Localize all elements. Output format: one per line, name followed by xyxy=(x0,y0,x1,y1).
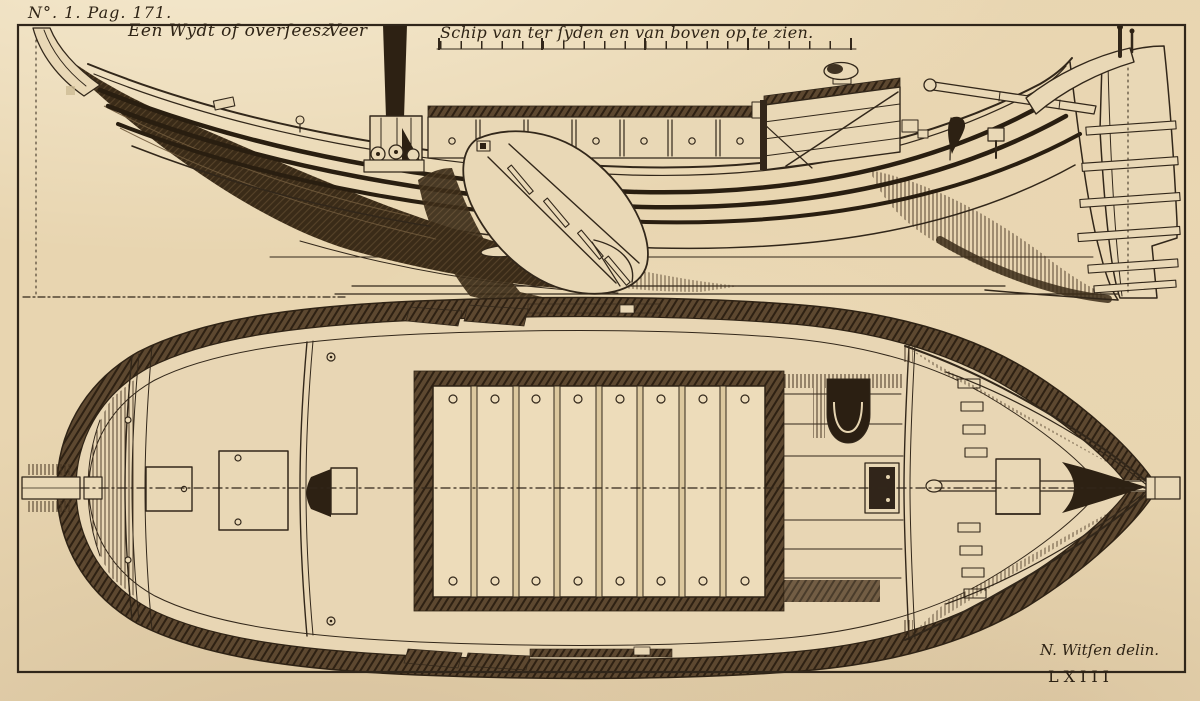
scale-bar xyxy=(437,44,856,49)
cabin xyxy=(760,63,928,171)
engraving-canvas xyxy=(0,0,1200,701)
block-pulley xyxy=(407,149,419,161)
aft-box xyxy=(996,459,1040,514)
spar-knob xyxy=(924,79,936,91)
bow-stem xyxy=(33,28,100,96)
mast xyxy=(364,25,424,172)
plate-number: LXIII xyxy=(1048,667,1114,686)
title-part-1: Een Wydt of overſeesz xyxy=(128,21,331,41)
small-hatch xyxy=(146,467,192,511)
side-view xyxy=(23,24,1180,303)
page-reference: N°. 1. Pag. 171. xyxy=(28,3,172,22)
mid-hatch xyxy=(219,451,288,530)
engraver-signature: N. Witſen delin. xyxy=(1040,641,1159,659)
engraved-plate: N°. 1. Pag. 171. Een Wydt of overſeesz V… xyxy=(0,0,1200,701)
title-part-2: Veer xyxy=(328,21,367,41)
main-hatch xyxy=(414,371,784,611)
stern-cap xyxy=(1146,477,1180,499)
bitt xyxy=(988,128,1004,141)
stern-hull-shading xyxy=(870,170,1108,300)
title-part-3: Schip van ter ſyden en van boven op te z… xyxy=(440,23,814,42)
top-view xyxy=(22,298,1180,679)
